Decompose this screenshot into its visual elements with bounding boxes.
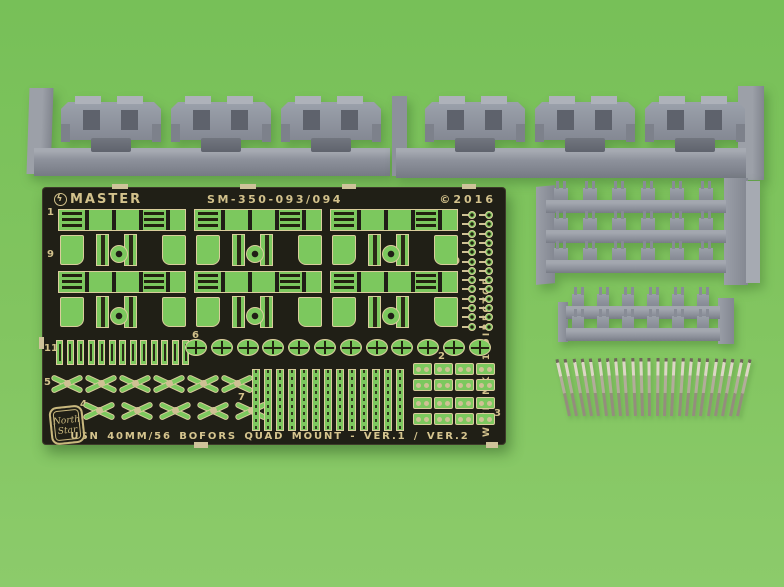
etched-small-part [455,397,474,409]
metal-barrel [663,358,667,416]
etched-strip-part [372,369,380,431]
etched-slat-part [119,340,126,365]
resin-gun-mount [423,94,527,154]
etched-small-part [434,363,453,375]
etched-eyelet-part [462,304,476,312]
etched-slat-part [109,340,116,365]
etched-x-part [158,398,194,424]
resin-part [699,248,713,260]
resin-part [641,188,655,200]
resin-part [612,248,626,260]
etched-x-part [152,371,188,397]
resin-part [699,218,713,230]
etched-wheel-part [391,339,413,356]
etched-eyelet-part [479,323,493,331]
resin-gun-mount [643,94,747,154]
resin-part [672,294,684,306]
etched-slat-part [172,340,179,365]
resin-part [583,248,597,260]
resin-gun-mount [279,94,383,154]
etched-strip-part [276,369,284,431]
etched-strip-part [348,369,356,431]
etched-small-part [476,413,495,425]
metal-barrel [656,358,659,416]
metal-barrel [623,358,629,416]
resin-part [572,316,584,328]
metal-barrels-fan [564,352,746,422]
metal-barrel [597,358,607,416]
etched-strip-part [324,369,332,431]
gun-mounts-group [28,86,390,180]
resin-part [612,188,626,200]
resin-part [641,248,655,260]
etched-slat-part [151,340,158,365]
resin-part [647,316,659,328]
etched-small-part [476,397,495,409]
resin-part [641,218,655,230]
etched-strip-part [312,369,320,431]
resin-part [670,248,684,260]
etched-wheel-part [288,339,310,356]
etched-rack-part [194,209,326,267]
etched-eyelet-part [479,295,493,303]
etched-strip-part [300,369,308,431]
resin-bar-small [558,298,734,344]
etched-slat-part [56,340,63,365]
etched-eyelet-part [479,220,493,228]
etched-small-part [434,379,453,391]
etched-small-part [434,413,453,425]
etched-small-part [455,413,474,425]
resin-gun-mount [59,94,163,154]
etched-eyelet-part [479,239,493,247]
etched-rack-part [194,271,326,329]
resin-part [554,248,568,260]
etched-slat-part [67,340,74,365]
etched-slat-part [98,340,105,365]
resin-strip-left [28,86,390,180]
etched-x-part [50,371,86,397]
etched-x-part [118,371,154,397]
etched-rack-part [58,209,190,267]
etched-small-part [455,379,474,391]
etched-strip-part [264,369,272,431]
etched-small-part [476,363,495,375]
etched-eyelet-part [462,248,476,256]
resin-part [597,316,609,328]
resin-part [612,218,626,230]
etched-x-part [120,398,156,424]
etched-eyelet-part [479,267,493,275]
resin-rail [546,230,726,243]
etched-eyelet-part [479,258,493,266]
etched-strip-part [360,369,368,431]
etched-wheel-part [443,339,465,356]
metal-barrel [670,358,675,416]
etched-eyelet-part [462,239,476,247]
etched-wheel-part [314,339,336,356]
etched-strip-part [252,369,260,431]
etched-eyelet-part [462,285,476,293]
resin-part [672,316,684,328]
pe-fret: ϟ MASTER SM-350-093/094 ©2016 WITH MK-51… [42,187,506,445]
etched-eyelet-part [479,304,493,312]
etched-small-part [455,363,474,375]
resin-part [670,218,684,230]
etched-strip-part [336,369,344,431]
etched-eyelet-part [462,267,476,275]
etched-small-part [413,413,432,425]
resin-part [697,294,709,306]
resin-part [647,294,659,306]
product-photo: ϟ MASTER SM-350-093/094 ©2016 WITH MK-51… [0,0,784,587]
etched-wheel-part [262,339,284,356]
etched-small-part [476,379,495,391]
etched-wheel-part [469,339,491,356]
etched-small-part [413,397,432,409]
etched-eyelet-part [479,285,493,293]
etched-x-part [220,371,256,397]
etched-wheel-part [340,339,362,356]
resin-part [622,316,634,328]
etched-wheel-part [211,339,233,356]
etched-eyelet-part [462,211,476,219]
bar-end-cap-right [718,298,734,344]
metal-barrel [678,358,684,416]
etched-x-part [196,398,232,424]
etched-rack-part [330,209,462,267]
etched-wheel-part [417,339,439,356]
metal-barrel [614,358,621,416]
resin-rail [546,200,726,213]
resin-part [583,218,597,230]
etched-eyelet-part [479,248,493,256]
etched-eyelet-part [462,230,476,238]
etched-slat-part [140,340,147,365]
etched-x-part [84,371,120,397]
resin-tray [536,178,762,288]
etched-wheel-part [185,339,207,356]
etched-strip-part [384,369,392,431]
resin-part [670,188,684,200]
etched-eyelet-part [479,230,493,238]
tray-end-face [746,181,760,283]
etched-slat-part [161,340,168,365]
metal-barrel [555,359,570,416]
etched-small-part [413,363,432,375]
resin-part [699,188,713,200]
etched-eyelet-part [462,276,476,284]
etched-x-part [186,371,222,397]
metal-barrel [648,358,651,416]
resin-gun-mount [169,94,273,154]
resin-strip-right [392,86,764,182]
etched-eyelet-part [462,313,476,321]
etched-eyelet-part [462,323,476,331]
etched-slat-part [88,340,95,365]
metal-barrel [606,358,615,416]
resin-rail [546,260,726,273]
etched-parts-area [42,187,506,445]
etched-slat-part [130,340,137,365]
gun-mounts-group [392,86,764,182]
tray-end-cap-right [724,178,748,285]
etched-eyelet-part [462,295,476,303]
etched-strip-part [288,369,296,431]
etched-slat-part [77,340,84,365]
etched-strip-part [396,369,404,431]
metal-barrel [631,358,636,416]
etched-rack-part [58,271,190,329]
etched-small-part [413,379,432,391]
resin-rail [566,328,720,341]
etched-eyelet-part [462,258,476,266]
etched-small-part [434,397,453,409]
etched-wheel-part [237,339,259,356]
etched-eyelet-part [479,313,493,321]
etched-eyelet-part [479,211,493,219]
resin-part [572,294,584,306]
etched-rack-part [330,271,462,329]
etched-wheel-part [366,339,388,356]
etched-eyelet-part [462,220,476,228]
resin-part [554,188,568,200]
resin-part [597,294,609,306]
metal-barrel [685,358,692,416]
resin-part [697,316,709,328]
resin-part [554,218,568,230]
resin-part [622,294,634,306]
etched-x-part [82,398,118,424]
resin-part [583,188,597,200]
metal-barrel [639,358,643,416]
resin-gun-mount [533,94,637,154]
etched-eyelet-part [479,276,493,284]
